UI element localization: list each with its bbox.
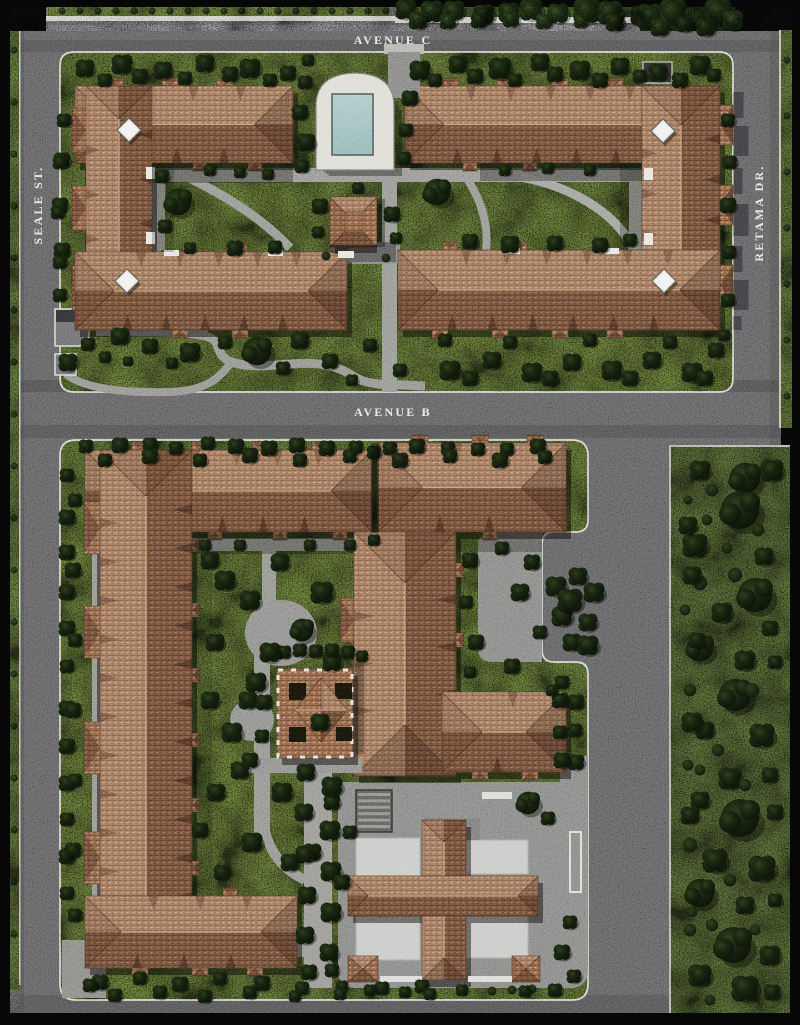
svg-text:SEALE ST.: SEALE ST.: [31, 166, 45, 245]
svg-text:RETAMA DR.: RETAMA DR.: [752, 164, 766, 261]
svg-text:AVENUE B: AVENUE B: [354, 405, 432, 419]
svg-text:AVENUE C: AVENUE C: [354, 33, 432, 47]
